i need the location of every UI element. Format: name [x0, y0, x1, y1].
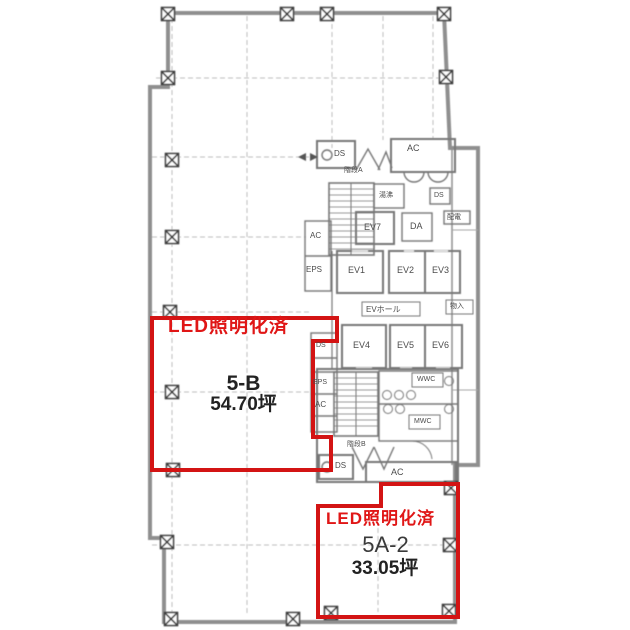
ds-room-top-label: DS [334, 150, 345, 158]
ac-shaft-left-label: AC [310, 232, 321, 240]
ev2-label: EV2 [397, 266, 414, 275]
ac-room-top-label: AC [407, 144, 420, 153]
ds-shaft-5b-label: DS [316, 342, 326, 349]
ev4-label: EV4 [353, 341, 370, 350]
da-shaft-label: DA [410, 222, 423, 231]
ds-room-bottom-label: DS [335, 462, 346, 470]
unit-5b-led-label: LED照明化済 [168, 317, 289, 336]
floorplan-linework [0, 0, 630, 630]
ac-shaft-5b-label: AC [315, 401, 326, 409]
unit-5a2-area: 33.05坪 [336, 558, 434, 580]
ev5-label: EV5 [397, 341, 414, 350]
ev6-label: EV6 [432, 341, 449, 350]
floorplan-page: LED照明化済 5-B 54.70坪 LED照明化済 5A-2 33.05坪 A… [0, 0, 630, 630]
ds-shaft-upper-label: DS [434, 192, 444, 199]
eps-shaft-left-label: EPS [306, 266, 322, 274]
core-lower [311, 333, 458, 482]
unit-5a2-led-label: LED照明化済 [326, 510, 435, 527]
kitchenette-label: 湯沸 [379, 192, 393, 199]
ev7-label: EV7 [364, 223, 381, 232]
ev3-label: EV3 [432, 266, 449, 275]
storage-label: 物入 [450, 303, 464, 310]
ev1-label: EV1 [348, 266, 365, 275]
elec-panel-label: 配電 [447, 214, 461, 221]
unit-5a2-name: 5A-2 [338, 532, 433, 557]
eps-shaft-5b-label: EPS [313, 379, 327, 386]
mwc-label: MWC [414, 418, 432, 425]
stair-a-label: 階段A [344, 167, 363, 174]
wwc-label: WWC [417, 376, 435, 383]
ev-hall-label: EVホール [366, 306, 401, 314]
stair-b-label: 階段B [347, 441, 366, 448]
unit-5b-area: 54.70坪 [181, 394, 306, 416]
unit-5b-name: 5-B [196, 372, 291, 396]
ac-room-bottom-label: AC [391, 468, 404, 477]
